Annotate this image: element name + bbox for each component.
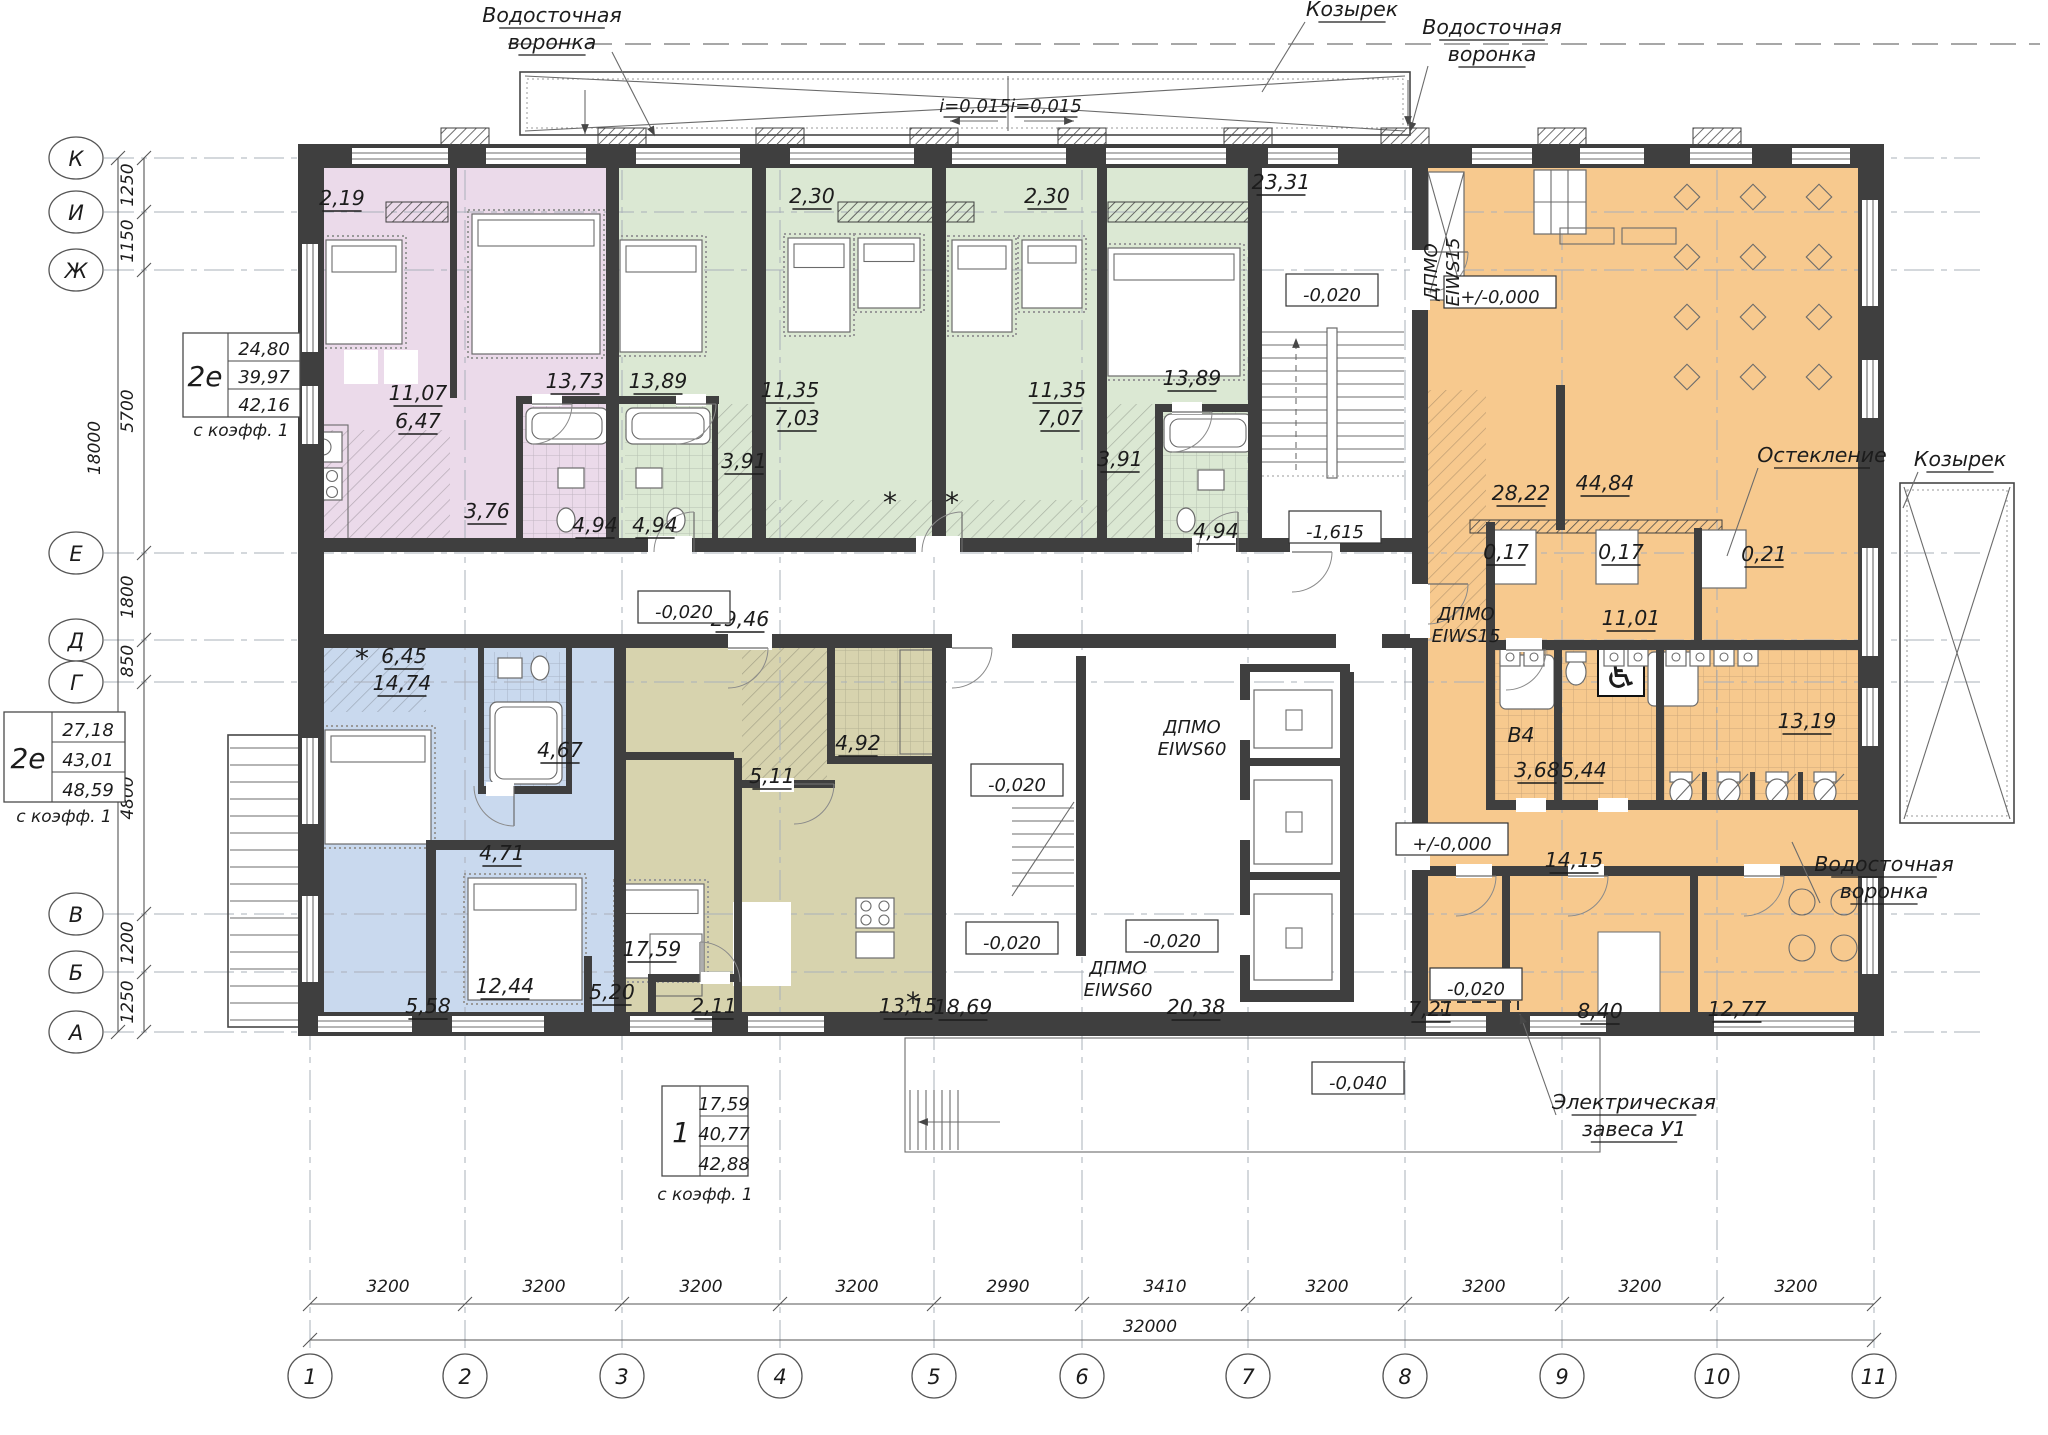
window: [1690, 148, 1752, 164]
apt-type: 2е: [187, 360, 222, 393]
column-bubble-label: 2: [458, 1365, 471, 1389]
apt-area-2: 40,77: [698, 1124, 750, 1145]
apartment-table-2e-left: 2е 27,18 43,01 48,59 с коэфф. 1: [4, 712, 125, 827]
elevation-value: -0,040: [1329, 1073, 1387, 1094]
bed: [614, 880, 708, 982]
bed-mattress: [472, 214, 600, 354]
wall-opening: [952, 632, 1012, 650]
canopy-top: [508, 44, 2040, 135]
room-area-label: 6,45: [381, 644, 427, 668]
window: [1268, 148, 1338, 164]
column-bubble-label: 11: [1861, 1365, 1888, 1389]
note-line: ДПМО: [1162, 717, 1220, 738]
callout-line: Козырек: [1306, 0, 1399, 21]
room-area-label: 2,19: [319, 186, 365, 210]
bed: [616, 236, 706, 356]
callout-line: Остекление: [1757, 443, 1886, 467]
dim-total: 18000: [85, 421, 105, 475]
bed-mattress: [326, 240, 402, 344]
callout-line: Водосточная: [482, 3, 622, 27]
washbasin: [1714, 648, 1734, 666]
apt-area-3: 42,16: [238, 395, 290, 416]
window: [636, 148, 740, 164]
bed-mattress: [1108, 248, 1240, 376]
wall-opening: [728, 632, 772, 650]
window: [486, 148, 586, 164]
dim-value: 2990: [986, 1277, 1029, 1297]
room-area-label: 7,07: [1037, 406, 1083, 430]
room-area-label: 14,74: [373, 671, 432, 695]
room-area-label: 3,91: [721, 449, 767, 473]
wall-opening: [1410, 584, 1430, 638]
room-area-label: 3,76: [464, 499, 510, 523]
note-line: i=0,015: [1010, 96, 1082, 117]
washbasin: [1690, 648, 1710, 666]
bed-mattress: [620, 240, 702, 352]
wall-opening: [1238, 915, 1252, 955]
elevation-value: -0,020: [655, 602, 713, 623]
room-area-label: 7,03: [774, 406, 820, 430]
window: [318, 1016, 412, 1032]
dim-value: 5700: [118, 389, 138, 432]
elevation-value: -0,020: [988, 775, 1046, 796]
bed-mattress: [618, 884, 704, 978]
wall-opening: [1336, 632, 1382, 650]
room-area-label: 4,71: [479, 841, 525, 865]
note: ДПМОEIWS15: [1432, 604, 1501, 647]
callout-line: воронка: [508, 30, 597, 54]
dim-value: 3200: [522, 1277, 565, 1297]
dim-value: 3200: [1618, 1277, 1661, 1297]
pilaster-cap: [756, 128, 804, 146]
dim-value: 3410: [1143, 1277, 1186, 1297]
washbasin: [1738, 648, 1758, 666]
floor-plan-svg: ♿ ****: [0, 0, 2048, 1435]
wall-opening: [486, 782, 514, 796]
room-area-label: 2,11: [691, 994, 737, 1018]
room-area-label: 3,91: [1097, 447, 1143, 471]
column-bubble-label: 4: [773, 1365, 786, 1389]
apt-note: с коэфф. 1: [16, 807, 111, 827]
elevation-value: -1,615: [1306, 522, 1364, 543]
note-line: EIWS15: [1443, 238, 1464, 307]
dim-value: 1250: [118, 163, 138, 206]
room-area-label: 13,73: [546, 369, 605, 393]
room-area-label: 13,19: [1778, 709, 1837, 733]
floor-plan-drawing: ♿ ****: [0, 0, 2048, 1435]
window: [1792, 148, 1850, 164]
note: ДПМОEIWS15: [1421, 238, 1464, 307]
elevation-value: -0,020: [1303, 285, 1361, 306]
window: [1580, 148, 1644, 164]
note: ДПМОEIWS60: [1084, 958, 1153, 1001]
column-bubble-label: 1: [303, 1365, 316, 1389]
pilaster-cap: [598, 128, 646, 146]
room-area-label: 14,15: [1545, 848, 1604, 872]
note-line: ДПМО: [1436, 604, 1494, 625]
apt-area-2: 39,97: [238, 367, 290, 388]
room-area-label: 5,44: [1561, 758, 1607, 782]
room-area-label: 17,59: [623, 937, 682, 961]
row-bubble-label: Е: [69, 542, 83, 566]
row-bubble-label: Ж: [63, 259, 89, 283]
callout-line: Водосточная: [1422, 15, 1562, 39]
room-area-label: 3,68: [1514, 758, 1560, 782]
row-bubble-label: А: [67, 1021, 83, 1045]
elevation-value: -0,020: [983, 933, 1041, 954]
room-area-label: 12,77: [1708, 997, 1767, 1021]
column-bubble-label: 5: [927, 1365, 940, 1389]
note-line: ДПМО: [1088, 958, 1146, 979]
elevation-value: +/-0,000: [1460, 287, 1539, 308]
column-bubble-label: 6: [1075, 1365, 1088, 1389]
dim-total: 32000: [1123, 1317, 1177, 1337]
window: [452, 1016, 544, 1032]
room-area-label: 28,22: [1492, 481, 1551, 505]
column-bubble-label: 3: [615, 1365, 628, 1389]
window: [302, 738, 318, 824]
wall-opening: [700, 972, 730, 984]
pilaster-cap: [1538, 128, 1586, 146]
room-area-label: 0,17: [1483, 540, 1529, 564]
note-line: i=0,015: [939, 96, 1011, 117]
wall-opening: [1598, 798, 1628, 812]
row-bubble-label: И: [68, 201, 84, 225]
wall-opening: [1238, 700, 1252, 740]
dim-value: 850: [118, 645, 138, 677]
elevation-value: +/-0,000: [1412, 834, 1491, 855]
dim-value: 3200: [366, 1277, 409, 1297]
note-line: EIWS60: [1084, 980, 1153, 1001]
elevation-value: -0,020: [1143, 931, 1201, 952]
room-area-label: 2,30: [1024, 184, 1070, 208]
pilaster-cap: [1058, 128, 1106, 146]
note: i=0,015: [1010, 96, 1082, 117]
wall-opening: [1238, 800, 1252, 840]
window: [1106, 148, 1226, 164]
room-area-label: 13,89: [1163, 366, 1222, 390]
room-area-label: 4,94: [632, 513, 678, 537]
light-symbol: *: [945, 486, 959, 519]
callout-line: завеса У1: [1582, 1117, 1686, 1141]
elevation-value: -0,020: [1447, 979, 1505, 1000]
window: [790, 148, 914, 164]
apt-area-1: 17,59: [698, 1094, 750, 1115]
room-area-label: 0,17: [1598, 540, 1644, 564]
row-bubble-label: В: [69, 903, 83, 927]
window: [1862, 200, 1878, 306]
callout-line: Козырек: [1914, 447, 2007, 471]
pilaster-cap: [1224, 128, 1272, 146]
column-bubble-label: 9: [1555, 1365, 1568, 1389]
pilaster-cap: [910, 128, 958, 146]
note-line: EIWS15: [1432, 626, 1501, 647]
bed: [1018, 236, 1086, 312]
room-area-label: 6,47: [395, 409, 441, 433]
row-bubble-label: К: [69, 147, 85, 171]
room-area-label: 20,38: [1167, 995, 1226, 1019]
note: ДПМОEIWS60: [1158, 717, 1227, 760]
window: [1802, 1016, 1854, 1032]
door-swing: [1292, 552, 1332, 592]
window: [1862, 688, 1878, 746]
callout-line: Электрическая: [1551, 1090, 1716, 1114]
apt-type: 1: [672, 1116, 690, 1149]
window: [302, 896, 318, 982]
room-area-label: 4,92: [835, 731, 881, 755]
room-area-label: 18,69: [934, 995, 993, 1019]
dim-value: 3200: [835, 1277, 878, 1297]
room-area-label: 11,07: [389, 381, 448, 405]
dim-value: 3200: [1305, 1277, 1348, 1297]
washbasin: [1604, 648, 1624, 666]
dim-value: 1200: [118, 921, 138, 964]
apt-type: 2е: [10, 742, 45, 775]
dim-value: 3200: [1774, 1277, 1817, 1297]
window: [352, 148, 448, 164]
apartment-table-1-bottom: 1 17,59 40,77 42,88 с коэфф. 1: [657, 1086, 752, 1205]
room-area-label: В4: [1507, 723, 1534, 747]
bed: [784, 234, 854, 336]
window: [1472, 148, 1532, 164]
pilaster-cap: [1381, 128, 1429, 146]
bed-mattress: [952, 240, 1012, 332]
room-area-label: 23,31: [1252, 170, 1311, 194]
room-area-label: 11,35: [761, 378, 820, 402]
dim-value: 3200: [1462, 1277, 1505, 1297]
room-area-label: 5,20: [589, 980, 635, 1004]
callout-line: Водосточная: [1814, 852, 1954, 876]
window: [302, 244, 318, 352]
apt-area-3: 48,59: [62, 780, 114, 801]
room-area-label: 44,84: [1576, 471, 1635, 495]
window: [302, 386, 318, 444]
apartment-table-2e-top: 2е 24,80 39,97 42,16 с коэфф. 1: [183, 333, 300, 441]
bed-mattress: [325, 730, 431, 844]
dim-value: 1150: [118, 219, 138, 262]
apt-area-3: 42,88: [698, 1154, 750, 1175]
bed: [322, 236, 406, 348]
room-area-label: 13,15: [879, 994, 938, 1018]
room-area-label: 4,94: [1193, 519, 1239, 543]
room-area-label: 4,94: [572, 513, 618, 537]
room-area-label: 2,30: [789, 184, 835, 208]
pilaster-cap: [441, 128, 489, 146]
window: [952, 148, 1066, 164]
row-bubble-label: Б: [69, 961, 83, 985]
room-area-label: 13,89: [629, 369, 688, 393]
room-area-label: 8,40: [1577, 999, 1623, 1023]
window: [748, 1016, 824, 1032]
bed-mattress: [858, 238, 920, 308]
apt-note: с коэфф. 1: [657, 1185, 752, 1205]
canopy-right: [1900, 483, 2014, 823]
window: [1862, 548, 1878, 656]
room-area-label: 0,21: [1741, 542, 1787, 566]
apt-area-1: 24,80: [238, 339, 290, 360]
washbasin: [1666, 648, 1686, 666]
bed: [948, 236, 1016, 336]
room-area-label: 12,44: [476, 974, 535, 998]
row-bubble-label: Д: [67, 629, 84, 653]
bed-mattress: [788, 238, 850, 332]
room-area-label: 5,58: [405, 994, 451, 1018]
room-area-label: 11,35: [1028, 378, 1087, 402]
apt-note: с коэфф. 1: [193, 421, 288, 441]
apt-area-1: 27,18: [62, 720, 114, 741]
light-symbol: *: [883, 486, 897, 519]
pilaster-cap: [1693, 128, 1741, 146]
room-area-label: 5,11: [749, 764, 795, 788]
note-line: ДПМО: [1421, 243, 1442, 301]
column-bubble-label: 8: [1398, 1365, 1411, 1389]
bed: [854, 234, 924, 312]
apt-area-2: 43,01: [62, 750, 114, 771]
note: i=0,015: [939, 96, 1011, 117]
callout-line: воронка: [1448, 42, 1537, 66]
dim-value: 1250: [118, 980, 138, 1023]
bed-mattress: [1022, 240, 1082, 308]
callout-line: воронка: [1840, 879, 1929, 903]
note-line: EIWS60: [1158, 739, 1227, 760]
dim-value: 1800: [118, 575, 138, 618]
wall-opening: [1516, 798, 1546, 812]
column-bubble-label: 10: [1704, 1365, 1731, 1389]
washbasin: [1628, 648, 1648, 666]
bed: [1104, 244, 1244, 380]
room-area-label: 11,01: [1602, 606, 1661, 630]
bed: [321, 726, 435, 848]
dim-value: 3200: [679, 1277, 722, 1297]
room-area-label: 4,67: [537, 738, 583, 762]
window: [1862, 360, 1878, 418]
bed: [468, 210, 604, 358]
column-bubble-label: 7: [1241, 1365, 1255, 1389]
